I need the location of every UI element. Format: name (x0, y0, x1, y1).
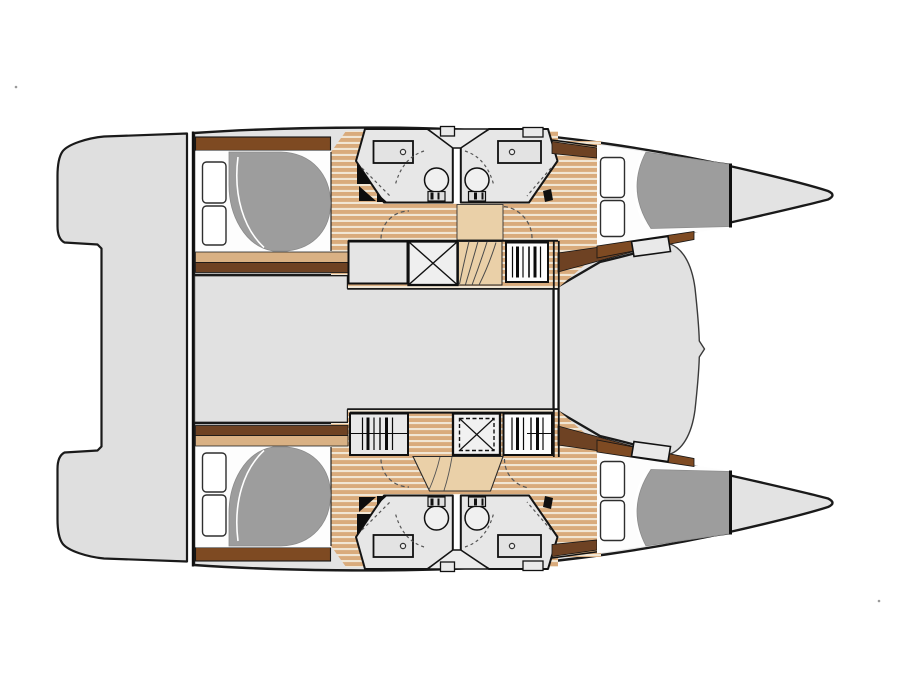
speck-artifact-left (15, 86, 18, 89)
toilet-mark (482, 193, 484, 200)
stair-landing (457, 205, 503, 241)
pillow-icon (601, 158, 625, 198)
toilet-icon (425, 168, 449, 192)
bathrooms (356, 127, 558, 204)
pillow-icon (203, 162, 227, 203)
toilet-mark (438, 193, 440, 200)
toilet-mark (474, 193, 477, 200)
foot-shelf-brown (196, 263, 349, 273)
sink-drain-icon (509, 149, 514, 154)
toilet-icon (465, 168, 489, 192)
headboard-shelf (196, 137, 331, 151)
hanging-locker-icon (504, 414, 553, 456)
catamaran-deck-plan (0, 0, 900, 675)
staircase-icon (413, 457, 503, 492)
bedspread (637, 152, 731, 229)
bridgedeck-saloon (195, 276, 554, 423)
sink-drain-icon (400, 149, 405, 154)
shelf-nook (523, 128, 543, 138)
hanging-locker-icon (350, 414, 408, 456)
speck-artifact-right (878, 600, 881, 603)
aft-cabin (196, 137, 349, 273)
pillow-icon (203, 206, 227, 245)
foredeck (558, 244, 705, 455)
vestibule-nook (441, 127, 455, 137)
foot-shelf-tan (196, 252, 349, 263)
toilet-mark (431, 193, 434, 200)
pillow-icon (601, 201, 625, 237)
washbasin-icon (374, 141, 414, 163)
catamaran-deck-plan-page (0, 0, 900, 675)
cabinet (349, 242, 408, 284)
stern-platform (58, 134, 188, 562)
washbasin-icon (498, 141, 541, 163)
